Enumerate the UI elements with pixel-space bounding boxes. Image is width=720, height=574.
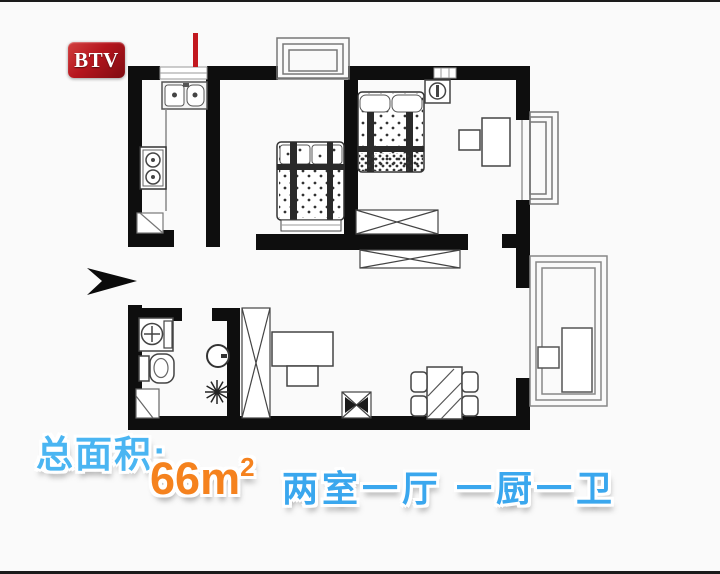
total-area-label: 总面积: (36, 424, 167, 478)
wall-mirror-icon (207, 345, 229, 367)
double-sink-icon (162, 82, 207, 109)
tall-wardrobe-icon (242, 308, 270, 418)
nightstand-lamp-icon (425, 80, 450, 103)
wardrobe-icon (356, 210, 438, 234)
kitchen-window (160, 67, 207, 79)
double-bed-icon (277, 142, 344, 231)
gas-stove-icon (140, 147, 166, 189)
floor-drain-icon (205, 380, 229, 404)
entrance-arrow-icon (87, 268, 137, 295)
bedroom2-window (434, 68, 456, 78)
coffee-stool-icon (342, 392, 371, 418)
annotation-marker (193, 33, 198, 67)
kitchen-corner-counter (137, 213, 163, 233)
shower-tray-icon (136, 389, 159, 418)
area-exponent: 2 (240, 452, 254, 482)
chair-icon (459, 130, 480, 150)
balcony-chair (538, 347, 559, 368)
area-number: 66 (150, 453, 200, 504)
channel-logo-text: BTV (74, 48, 119, 73)
sideboard-icon (360, 250, 460, 268)
double-bed-icon (358, 92, 424, 172)
washbasin-icon (139, 318, 173, 351)
tv-cabinet-icon (272, 332, 333, 386)
channel-logo: BTV (68, 42, 125, 78)
room-layout-text: 两室一厅 一厨一卫 (282, 460, 616, 512)
total-area-value: 66m2 (150, 452, 255, 505)
desk-icon (482, 118, 510, 166)
area-unit: m (200, 453, 240, 504)
top-bay-window (277, 38, 349, 79)
balcony-desk (562, 328, 592, 392)
right-bay-window (522, 112, 558, 204)
toilet-icon (139, 354, 174, 383)
tv-frame: BTV 总面积: 66m2 两室一厅 一厨一卫 (0, 0, 720, 574)
dining-table-icon (427, 367, 462, 419)
